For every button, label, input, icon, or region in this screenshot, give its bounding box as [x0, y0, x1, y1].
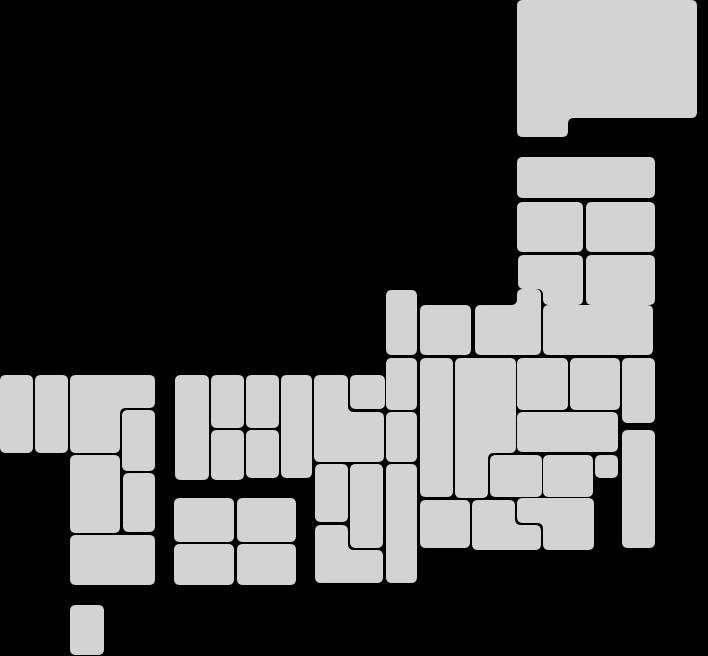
map-tile-chugoku-5[interactable] [246, 430, 279, 478]
map-tile-kinki-1[interactable] [350, 375, 385, 409]
map-canvas [0, 0, 708, 656]
map-tile-kanto-4[interactable] [490, 455, 542, 497]
map-tile-hokkaido[interactable] [517, 0, 697, 137]
map-tile-tohoku-2[interactable] [517, 202, 583, 252]
map-tile-chubu-6[interactable] [517, 358, 568, 410]
map-tile-chubu-1[interactable] [386, 290, 417, 355]
map-tile-chugoku-6[interactable] [281, 375, 312, 478]
map-tile-kyushu-4[interactable] [122, 410, 155, 471]
map-tile-kyushu-1[interactable] [0, 375, 33, 453]
map-tile-chubu-7[interactable] [570, 358, 620, 410]
map-tile-tohoku-7[interactable] [543, 305, 653, 355]
map-tile-kinki-6[interactable] [386, 464, 417, 583]
map-tile-chubu-8[interactable] [386, 412, 417, 462]
map-tile-chubu-4[interactable] [420, 358, 453, 497]
map-tile-tohoku-5[interactable] [586, 255, 655, 305]
map-tile-shikoku-3[interactable] [174, 544, 234, 585]
map-tile-kanto-6[interactable] [595, 455, 618, 478]
map-tile-chugoku-2[interactable] [211, 375, 244, 428]
map-tile-chubu-2[interactable] [420, 305, 471, 355]
map-tile-chubu-3[interactable] [386, 358, 417, 410]
map-tile-tohoku-1[interactable] [517, 157, 655, 198]
map-tile-kyushu-6[interactable] [123, 473, 155, 532]
map-tile-shikoku-2[interactable] [237, 498, 296, 542]
map-tile-kyushu-5[interactable] [70, 455, 120, 533]
map-tile-kyushu-7[interactable] [70, 535, 155, 585]
map-tile-shikoku-1[interactable] [174, 498, 234, 542]
map-tile-kinki-3[interactable] [315, 464, 348, 522]
map-tile-kanto-5[interactable] [543, 455, 593, 497]
map-tile-kyushu-2[interactable] [35, 375, 68, 453]
map-tile-kanto-7[interactable] [420, 500, 470, 548]
map-tile-kanto-2[interactable] [517, 412, 618, 452]
map-tile-chugoku-1[interactable] [175, 375, 209, 480]
map-tile-okinawa[interactable] [70, 605, 104, 655]
map-tile-chugoku-4[interactable] [246, 375, 279, 428]
map-tile-tohoku-3[interactable] [586, 202, 655, 252]
map-tile-shikoku-4[interactable] [237, 544, 296, 585]
map-tile-tohoku-6[interactable] [475, 289, 541, 355]
map-tile-kinki-4[interactable] [350, 464, 383, 548]
map-tile-chugoku-3[interactable] [211, 430, 244, 480]
japan-tile-map [0, 0, 708, 656]
map-tile-kanto-3[interactable] [622, 430, 655, 548]
map-tile-kanto-1[interactable] [622, 358, 655, 423]
